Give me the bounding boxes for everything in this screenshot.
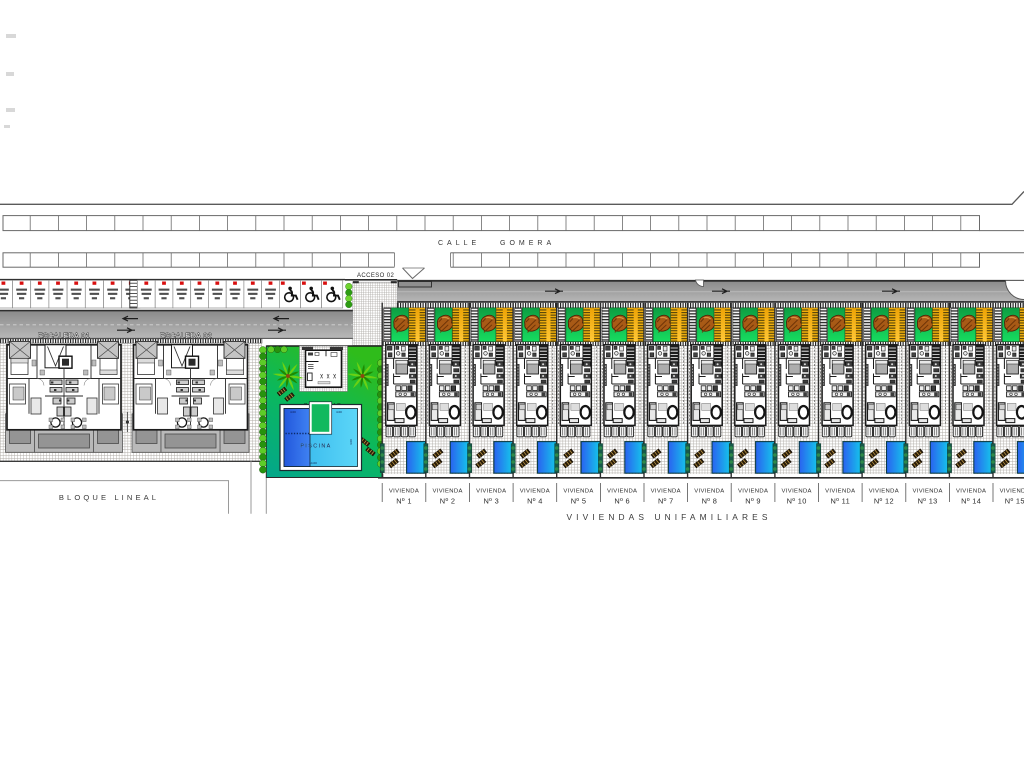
svg-text:Nº 5: Nº 5 — [571, 496, 587, 505]
svg-text:VIVIENDA: VIVIENDA — [607, 489, 637, 495]
svg-text:Nº 13: Nº 13 — [918, 496, 938, 505]
svg-text:VIVIENDA: VIVIENDA — [1000, 489, 1024, 495]
svg-text:Nº 6: Nº 6 — [614, 496, 630, 505]
svg-text:VIVIENDA: VIVIENDA — [825, 489, 855, 495]
svg-text:14.00: 14.00 — [309, 461, 317, 465]
svg-text:Nº 3: Nº 3 — [483, 496, 499, 505]
svg-text:VIVIENDA: VIVIENDA — [651, 489, 681, 495]
svg-text:Nº 1: Nº 1 — [396, 496, 412, 505]
svg-text:PISCINA: PISCINA — [300, 444, 331, 450]
svg-text:VIVIENDA: VIVIENDA — [520, 489, 550, 495]
svg-text:GOMERA: GOMERA — [500, 240, 555, 247]
svg-text:CALLE: CALLE — [438, 240, 480, 247]
svg-text:Nº 15: Nº 15 — [1005, 496, 1024, 505]
svg-text:Nº 8: Nº 8 — [702, 496, 718, 505]
svg-text:VIVIENDAS UNIFAMILIARES: VIVIENDAS UNIFAMILIARES — [566, 512, 771, 522]
svg-text:VIVIENDA: VIVIENDA — [738, 489, 768, 495]
svg-text:Nº 11: Nº 11 — [831, 496, 851, 505]
svg-text:4.00: 4.00 — [349, 439, 353, 445]
svg-text:Nº 2: Nº 2 — [440, 496, 456, 505]
svg-text:Nº 12: Nº 12 — [874, 496, 894, 505]
svg-text:VIVIENDA: VIVIENDA — [694, 489, 724, 495]
svg-text:VIVIENDA: VIVIENDA — [432, 489, 462, 495]
svg-text:Nº 14: Nº 14 — [961, 496, 981, 505]
svg-text:BLOQUE LINEAL: BLOQUE LINEAL — [59, 493, 159, 502]
svg-text:ACCESO 02: ACCESO 02 — [357, 273, 395, 279]
svg-text:VIVIENDA: VIVIENDA — [782, 489, 812, 495]
svg-text:Nº 10: Nº 10 — [787, 496, 807, 505]
svg-text:Nº 4: Nº 4 — [527, 496, 543, 505]
svg-text:Nº 9: Nº 9 — [745, 496, 761, 505]
svg-text:4.00: 4.00 — [290, 410, 296, 414]
svg-text:VIVIENDA: VIVIENDA — [912, 489, 942, 495]
svg-text:VIVIENDA: VIVIENDA — [956, 489, 986, 495]
svg-text:VIVIENDA: VIVIENDA — [563, 489, 593, 495]
svg-text:VIVIENDA: VIVIENDA — [869, 489, 899, 495]
svg-text:Nº 7: Nº 7 — [658, 496, 674, 505]
svg-text:VIVIENDA: VIVIENDA — [389, 489, 419, 495]
svg-text:4.00: 4.00 — [336, 410, 342, 414]
svg-text:VIVIENDA: VIVIENDA — [476, 489, 506, 495]
